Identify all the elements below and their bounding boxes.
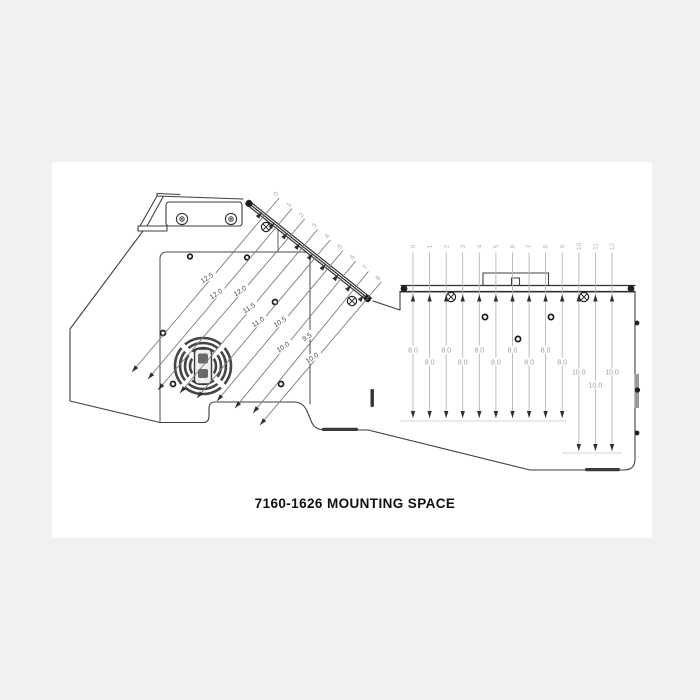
station-label: 3 xyxy=(311,222,319,230)
dimension-arrow xyxy=(411,295,415,302)
edge-bump xyxy=(635,387,640,392)
dimension-line xyxy=(253,272,368,414)
dimension-label: 12.0 xyxy=(229,282,251,300)
cross-screw-icon xyxy=(579,292,588,301)
panel-hole xyxy=(188,254,193,259)
station-text: 6 xyxy=(510,244,517,248)
station-label: 2 xyxy=(298,211,306,219)
dimension-arrow xyxy=(461,411,465,418)
dimension-arrow xyxy=(494,411,498,418)
station-text: 5 xyxy=(493,244,500,248)
dimension-arrow xyxy=(427,295,431,302)
station-label: 0 xyxy=(410,244,417,248)
rail-end-cap xyxy=(245,200,252,207)
dimension-line xyxy=(132,198,279,372)
drawing-page: 012.5112.0212.0311.5411.0510.5610.079.58… xyxy=(0,0,700,700)
cross-screw-icon xyxy=(347,296,356,305)
label-text: 8.0 xyxy=(541,347,551,354)
dimension-arrow xyxy=(427,411,431,418)
dimension-arrow xyxy=(527,411,531,418)
dimension-label: 8.0 xyxy=(504,346,520,355)
dimension-label: 12.5 xyxy=(196,269,218,287)
station-text: 11 xyxy=(592,243,599,250)
dimension-arrow xyxy=(543,295,547,302)
panel-holes xyxy=(161,254,554,386)
edge-bump xyxy=(635,321,640,326)
label-text: 8.0 xyxy=(491,359,501,366)
station-label: 12 xyxy=(609,243,616,251)
dimension-line xyxy=(235,261,356,408)
dimension-label: 8.0 xyxy=(438,346,454,355)
dimension-label: 8.0 xyxy=(422,358,438,367)
station-text: 2 xyxy=(298,211,306,219)
deck-plate-tab xyxy=(483,273,549,285)
station-text: 10 xyxy=(576,243,583,251)
station-label: 3 xyxy=(460,244,467,248)
dimension-arrow xyxy=(593,444,597,451)
station-text: 1 xyxy=(285,201,293,209)
station-text: 7 xyxy=(362,264,370,272)
station-text: 0 xyxy=(410,244,417,248)
label-text: 10.0 xyxy=(572,369,586,376)
station-label: 5 xyxy=(336,243,344,251)
dimension-label: 12.0 xyxy=(205,285,227,303)
station-text: 12 xyxy=(609,243,616,251)
ring-screw-icon xyxy=(176,213,187,224)
deck-hole xyxy=(548,314,553,319)
bottom-tab xyxy=(585,468,620,471)
label-text: 10.0 xyxy=(589,382,603,389)
station-label: 2 xyxy=(443,244,450,248)
edge-bump xyxy=(635,431,640,436)
dimension-label: 10.0 xyxy=(272,338,294,356)
screw-center xyxy=(230,218,232,220)
station-label: 7 xyxy=(362,264,370,272)
dimension-arrow xyxy=(527,295,531,302)
station-text: 3 xyxy=(460,244,467,248)
dimension-label: 8.0 xyxy=(471,346,487,355)
station-label: 8 xyxy=(543,244,550,248)
dimension-arrow xyxy=(510,295,514,302)
station-label: 0 xyxy=(273,190,281,198)
station-label: 9 xyxy=(559,244,566,248)
dimension-label: 8.0 xyxy=(538,346,554,355)
dimension-arrow xyxy=(543,411,547,418)
label-text: 8.0 xyxy=(524,359,534,366)
dimension-arrow xyxy=(461,295,465,302)
label-text: 10.0 xyxy=(605,369,619,376)
screw-center xyxy=(181,218,183,220)
cross-screw-icon xyxy=(261,222,270,231)
station-label: 6 xyxy=(510,244,517,248)
station-text: 0 xyxy=(273,190,281,198)
station-text: 8 xyxy=(375,274,383,282)
station-label: 7 xyxy=(526,244,533,248)
station-text: 3 xyxy=(311,222,319,230)
station-label: 1 xyxy=(427,244,434,248)
station-text: 4 xyxy=(476,244,483,248)
dimension-arrow xyxy=(610,444,614,451)
dimension-arrow xyxy=(593,295,597,302)
dimension-label: 8.0 xyxy=(455,358,471,367)
plate-end-cap xyxy=(628,285,635,292)
dimension-label: 8.0 xyxy=(521,358,537,367)
dimension-label: 8.0 xyxy=(488,358,504,367)
dimension-arrow xyxy=(411,411,415,418)
label-text: 8.0 xyxy=(458,359,468,366)
ring-screw-icon xyxy=(225,213,236,224)
panel-hole xyxy=(245,255,250,260)
dimension-arrow xyxy=(610,295,614,302)
dimension-label: 9.5 xyxy=(298,329,316,345)
vent-slot xyxy=(371,389,374,407)
station-label: 4 xyxy=(476,244,483,248)
station-label: 11 xyxy=(592,243,599,250)
station-text: 8 xyxy=(543,244,550,248)
station-label: 5 xyxy=(493,244,500,248)
dimension-label: 10.0 xyxy=(569,368,589,377)
panel-hole xyxy=(171,382,176,387)
station-text: 2 xyxy=(443,244,450,248)
station-text: 4 xyxy=(324,232,332,240)
dimension-label: 11.0 xyxy=(247,313,269,331)
dimension-arrow xyxy=(444,411,448,418)
drawing-title: 7160-1626 MOUNTING SPACE xyxy=(255,496,456,511)
panel-hole xyxy=(279,382,284,387)
dimension-arrow xyxy=(494,295,498,302)
label-text: 8.0 xyxy=(425,359,435,366)
plate-end-cap xyxy=(401,285,408,292)
dimension-label: 8.0 xyxy=(554,358,570,367)
dimension-arrow xyxy=(477,411,481,418)
station-label: 6 xyxy=(349,253,357,261)
top-bracket xyxy=(138,194,243,232)
dimension-arrow xyxy=(560,295,564,302)
dimension-label: 11.5 xyxy=(238,299,260,317)
right-dimension-group: 08.018.028.038.048.058.068.078.088.098.0… xyxy=(400,243,622,453)
label-text: 8.0 xyxy=(408,347,418,354)
deck-plate-top xyxy=(400,286,635,292)
label-text: 8.0 xyxy=(508,347,518,354)
station-text: 5 xyxy=(336,243,344,251)
dimension-arrow xyxy=(577,444,581,451)
dimension-arrow xyxy=(510,411,514,418)
station-text: 1 xyxy=(427,244,434,248)
dimension-label: 8.0 xyxy=(405,346,421,355)
label-text: 8.0 xyxy=(557,359,567,366)
dimension-label: 10.5 xyxy=(269,313,291,331)
deck-hole xyxy=(482,314,487,319)
dimension-label: 10.0 xyxy=(602,368,622,377)
station-text: 7 xyxy=(526,244,533,248)
bottom-tab xyxy=(322,428,358,431)
mounting-panel xyxy=(160,252,310,422)
mounting-space-diagram: 012.5112.0212.0311.5411.0510.5610.079.58… xyxy=(0,0,700,700)
station-label: 4 xyxy=(324,232,332,240)
station-label: 8 xyxy=(375,274,383,282)
deck-hole xyxy=(515,336,520,341)
label-text: 8.0 xyxy=(441,347,451,354)
station-label: 1 xyxy=(285,201,293,209)
dimension-label: 10.0 xyxy=(585,381,605,390)
station-text: 6 xyxy=(349,253,357,261)
station-label: 10 xyxy=(576,243,583,251)
station-text: 9 xyxy=(559,244,566,248)
label-text: 8.0 xyxy=(474,347,484,354)
dimension-arrow xyxy=(560,411,564,418)
dimension-arrow xyxy=(477,295,481,302)
